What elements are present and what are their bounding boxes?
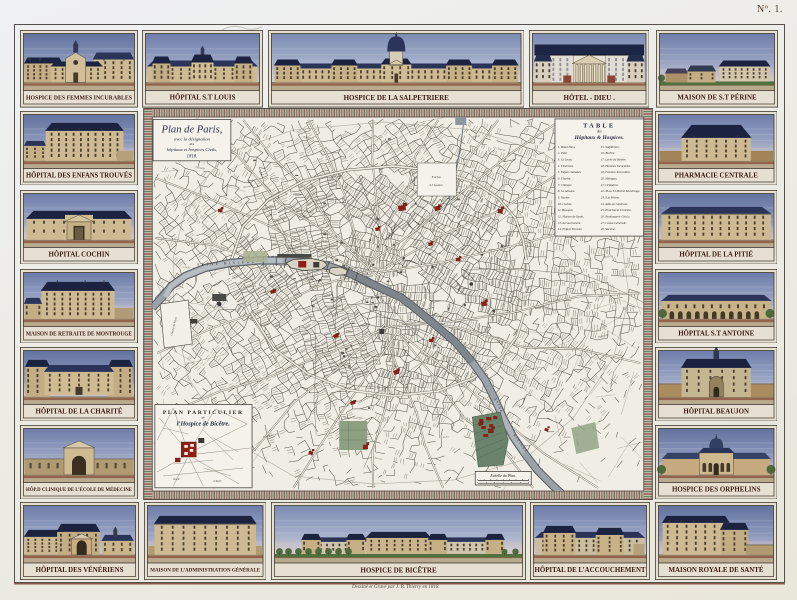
- svg-text:19. Femmes Incurables.: 19. Femmes Incurables.: [601, 170, 631, 174]
- svg-text:9. Necker.: 9. Necker.: [558, 195, 571, 199]
- svg-text:l’Hospice de Bicêtre.: l’Hospice de Bicêtre.: [177, 421, 231, 428]
- svg-text:18. Hommes Incurables.: 18. Hommes Incurables.: [601, 164, 631, 168]
- svg-text:5. Enfans malades.: 5. Enfans malades.: [558, 170, 582, 174]
- svg-text:HÔPITAL DE L’ACCOUCHEMENT: HÔPITAL DE L’ACCOUCHEMENT: [534, 566, 645, 574]
- svg-text:11. Beaujon.: 11. Beaujon.: [558, 208, 574, 212]
- svg-text:13. Accouchement.: 13. Accouchement.: [558, 221, 582, 225]
- svg-text:16. Bicêtre.: 16. Bicêtre.: [601, 151, 615, 155]
- svg-text:avec la désignation: avec la désignation: [174, 137, 210, 142]
- svg-text:8. S.t Antoine.: 8. S.t Antoine.: [558, 189, 576, 193]
- svg-text:HÔPITAL COCHIN: HÔPITAL COCHIN: [48, 251, 109, 259]
- svg-text:MAISON DE L’ADMINISTRATION GÉN: MAISON DE L’ADMINISTRATION GÉNÉRALE: [150, 566, 260, 574]
- svg-text:Passy: Passy: [302, 135, 311, 140]
- svg-text:d’Italie: d’Italie: [213, 480, 222, 483]
- svg-text:27. Caisse Générale.: 27. Caisse Générale.: [601, 221, 627, 225]
- svg-text:28. Vaccine.: 28. Vaccine.: [601, 227, 616, 231]
- svg-text:15. Salpêtrière.: 15. Salpêtrière.: [601, 145, 620, 149]
- svg-text:17. Lycée de Bicêtre.: 17. Lycée de Bicêtre.: [601, 158, 627, 162]
- svg-text:Route: Route: [172, 478, 180, 481]
- svg-text:PHARMACIE CENTRALE: PHARMACIE CENTRALE: [675, 173, 759, 180]
- svg-text:HOSPICE DES ORPHELINS: HOSPICE DES ORPHELINS: [672, 486, 761, 493]
- svg-text:TABLE: TABLE: [583, 123, 615, 130]
- svg-text:21. Orphelins.: 21. Orphelins.: [601, 183, 619, 187]
- svg-text:4. Vénériens.: 4. Vénériens.: [558, 164, 574, 168]
- svg-text:12. Maison de Santé.: 12. Maison de Santé.: [558, 214, 584, 218]
- svg-text:14. Enfans Trouvés.: 14. Enfans Trouvés.: [558, 227, 583, 231]
- svg-text:22. M.on S.t Michel Montrouge.: 22. M.on S.t Michel Montrouge.: [601, 189, 641, 193]
- svg-text:Clichy: Clichy: [183, 266, 191, 269]
- svg-text:25. Pharmacie Centrale.: 25. Pharmacie Centrale.: [601, 208, 632, 212]
- svg-text:20. Ménages.: 20. Ménages.: [601, 176, 618, 180]
- svg-text:1. Hôtel Dieu.: 1. Hôtel Dieu.: [558, 145, 576, 149]
- svg-text:26. Boulangerie Gén.le.: 26. Boulangerie Gén.le.: [601, 214, 631, 218]
- svg-text:24. Adm.on Générale.: 24. Adm.on Générale.: [601, 202, 628, 206]
- svg-text:10. Cochin.: 10. Cochin.: [558, 202, 573, 206]
- svg-text:23. S.te Périne.: 23. S.te Périne.: [601, 195, 620, 199]
- svg-text:2. Pitié.: 2. Pitié.: [558, 151, 568, 155]
- svg-text:Echelle du Plan.: Echelle du Plan.: [489, 474, 516, 478]
- svg-text:HÔPITAL DES ENFANS TROUVÉS: HÔPITAL DES ENFANS TROUVÉS: [26, 172, 132, 180]
- svg-text:MAISON ROYALE DE SANTÉ: MAISON ROYALE DE SANTÉ: [668, 566, 763, 574]
- svg-text:Plan de Paris,: Plan de Paris,: [160, 125, 222, 136]
- svg-text:7. Clinique.: 7. Clinique.: [558, 183, 573, 187]
- svg-text:HOSPICE DE LA SALPETRIERE: HOSPICE DE LA SALPETRIERE: [343, 93, 449, 101]
- svg-text:des: des: [190, 142, 195, 146]
- svg-text:HÔPITAL DE LA CHARITÉ: HÔPITAL DE LA CHARITÉ: [35, 408, 122, 416]
- svg-text:6. Charité.: 6. Charité.: [558, 176, 572, 180]
- svg-text:MAISON DE S.T PÉRINE: MAISON DE S.T PÉRINE: [677, 93, 757, 101]
- svg-text:HÔP.D CLINIQUE DE L’ÉCOLE DE M: HÔP.D CLINIQUE DE L’ÉCOLE DE MÉDECINE: [26, 487, 133, 493]
- svg-text:des: des: [597, 130, 602, 134]
- svg-text:HÔTEL - DIEU .: HÔTEL - DIEU .: [564, 93, 616, 101]
- svg-text:HÔPITAL BEAUJON: HÔPITAL BEAUJON: [683, 408, 749, 416]
- svg-text:Hôpitaux & Hospices.: Hôpitaux & Hospices.: [574, 135, 624, 141]
- svg-text:HÔPITAL S.T LOUIS: HÔPITAL S.T LOUIS: [170, 93, 236, 101]
- svg-text:HÔPITAL DE LA PITIÉ: HÔPITAL DE LA PITIÉ: [679, 251, 753, 259]
- svg-text:1818.: 1818.: [187, 155, 198, 160]
- svg-text:HÔPITAL S.T ANTOINE: HÔPITAL S.T ANTOINE: [678, 330, 754, 338]
- svg-text:3. S.t Louis.: 3. S.t Louis.: [558, 158, 573, 162]
- svg-text:MAISON DE RETRAITE DE MONTROUG: MAISON DE RETRAITE DE MONTROUGE: [26, 331, 132, 337]
- svg-text:HOSPICE DE BICÊTRE: HOSPICE DE BICÊTRE: [360, 566, 437, 574]
- svg-text:Chaillot: Chaillot: [563, 436, 571, 439]
- svg-text:de: de: [202, 416, 206, 420]
- svg-text:Enclos: Enclos: [431, 175, 442, 179]
- svg-text:HOSPICE DES FEMMES INCURABLES: HOSPICE DES FEMMES INCURABLES: [26, 94, 133, 101]
- svg-text:S.t Lazare: S.t Lazare: [429, 183, 443, 187]
- svg-text:HÔPITAL DES VÉNÉRIENS: HÔPITAL DES VÉNÉRIENS: [35, 566, 123, 574]
